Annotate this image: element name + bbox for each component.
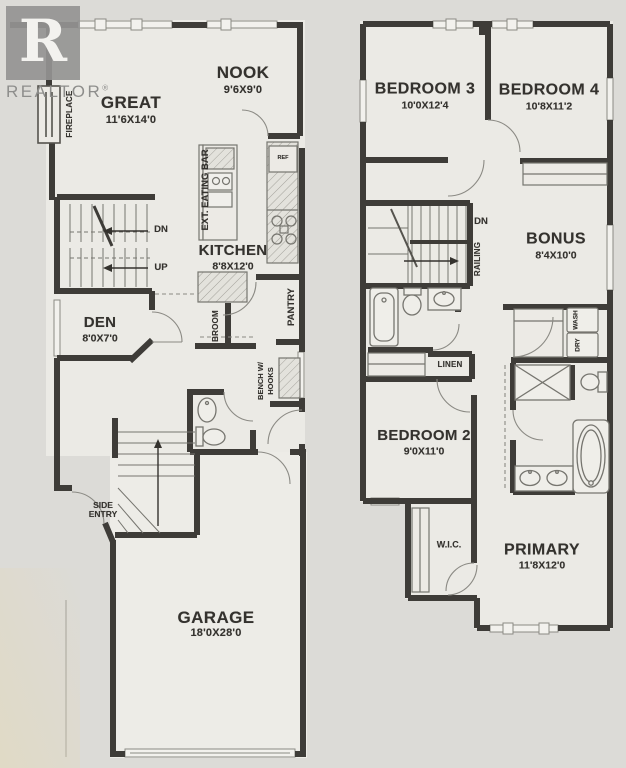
stairs-dn-label: DN (154, 225, 168, 235)
side-entry-label: SIDE ENTRY (79, 501, 127, 519)
bonus-label: BONUS (526, 232, 586, 249)
registered-mark: ® (102, 83, 108, 92)
den-label: DEN (84, 315, 117, 331)
floorplan-drawing (0, 0, 626, 768)
nook-dims: 9'6X9'0 (224, 85, 262, 97)
bedroom2-dims: 9'0X11'0 (404, 446, 445, 457)
garage-label: GARAGE (177, 609, 254, 627)
broom-label: BROOM (212, 310, 220, 342)
den-dims: 8'0X7'0 (82, 333, 117, 344)
kitchen-dims: 8'8X12'0 (212, 261, 253, 272)
primary-label: PRIMARY (504, 543, 580, 560)
realtor-brand-text: REALTOR (6, 82, 102, 101)
stairs-up-label: UP (154, 263, 167, 273)
eating-bar-label: EXT. EATING BAR (201, 149, 211, 230)
primary-dims: 11'8X12'0 (519, 560, 565, 571)
realtor-watermark: R REALTOR® (6, 6, 108, 102)
wic-label: W.I.C. (437, 540, 462, 549)
wash-label: WASH (574, 310, 581, 330)
bench-seat (279, 358, 300, 398)
realtor-logo-icon: R (6, 6, 80, 80)
nook-label: NOOK (217, 64, 270, 82)
broom-shelves (198, 272, 247, 302)
bedroom4-dims: 10'8X11'2 (526, 101, 572, 112)
realtor-watermark-text: REALTOR® (6, 82, 108, 102)
bench-label-line1: BENCH W/ (257, 362, 265, 400)
linen-label: LINEN (438, 361, 463, 369)
railing-label: RAILING (474, 242, 482, 276)
realtor-logo-letter: R (19, 12, 67, 70)
great-room-dims: 11'6X14'0 (106, 115, 156, 127)
ref-label: REF (278, 156, 289, 162)
bedroom3-label: BEDROOM 3 (375, 82, 476, 99)
dry-label: DRY (576, 338, 583, 351)
bedroom4-label: BEDROOM 4 (499, 83, 600, 100)
garage-dims: 18'0X28'0 (190, 628, 241, 640)
floorplan-page: FIREPLACE GREAT 11'6X14'0 NOOK 9'6X9'0 E… (0, 0, 626, 768)
bedroom3-dims: 10'0X12'4 (401, 100, 448, 111)
upper-dn-label: DN (474, 217, 488, 227)
bonus-dims: 8'4X10'0 (535, 250, 576, 261)
great-room-label: GREAT (101, 94, 161, 112)
bench-label-line2: HOOKS (267, 367, 275, 395)
bedroom2-label: BEDROOM 2 (377, 428, 471, 444)
kitchen-label: KITCHEN (199, 243, 268, 259)
pantry-label: PANTRY (287, 288, 297, 326)
